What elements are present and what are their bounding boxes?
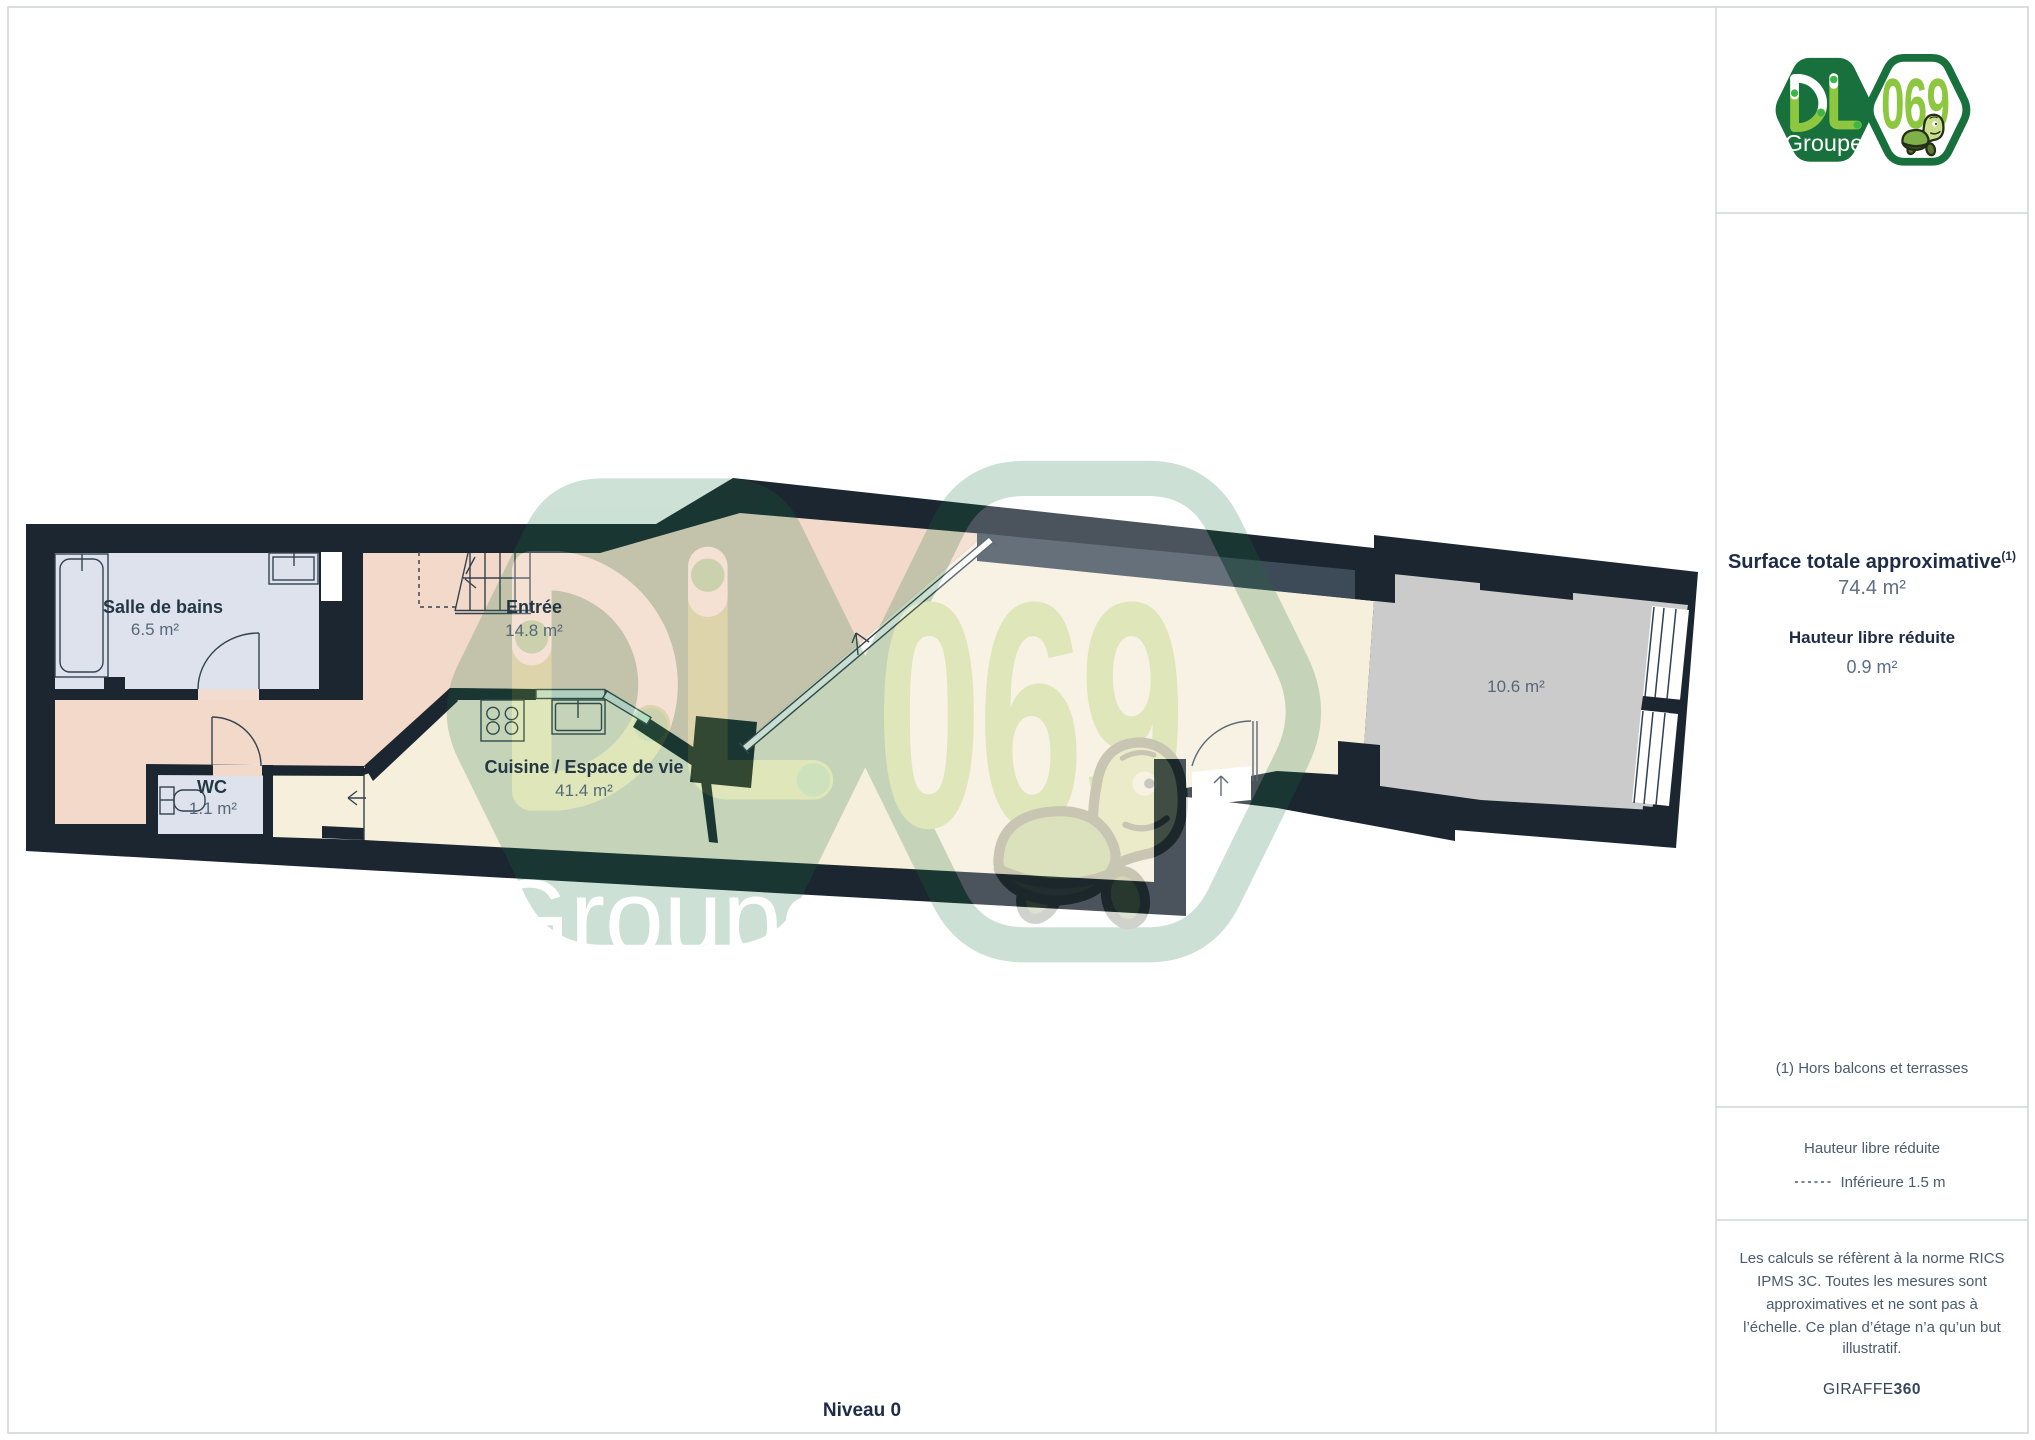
svg-text:Hauteur libre réduite: Hauteur libre réduite bbox=[1804, 1140, 1940, 1157]
svg-text:l’échelle. Ce plan d’étage n’a: l’échelle. Ce plan d’étage n’a qu’un but bbox=[1743, 1319, 2002, 1336]
svg-text:Hauteur libre réduite: Hauteur libre réduite bbox=[1789, 628, 1955, 647]
svg-text:74.4 m²: 74.4 m² bbox=[1838, 577, 1906, 599]
svg-text:14.8 m²: 14.8 m² bbox=[505, 621, 563, 640]
svg-text:illustratif.: illustratif. bbox=[1842, 1340, 1901, 1357]
svg-text:Niveau 0: Niveau 0 bbox=[823, 1400, 901, 1421]
svg-text:Les calculs se réfèrent à la n: Les calculs se réfèrent à la norme RICS bbox=[1739, 1250, 2004, 1267]
svg-text:6.5 m²: 6.5 m² bbox=[131, 620, 180, 639]
svg-text:Salle de bains: Salle de bains bbox=[103, 597, 223, 617]
svg-text:approximatives et ne sont pas: approximatives et ne sont pas à bbox=[1766, 1296, 1978, 1313]
svg-text:10.6 m²: 10.6 m² bbox=[1487, 677, 1545, 696]
svg-text:Inférieure 1.5 m: Inférieure 1.5 m bbox=[1840, 1174, 1945, 1191]
svg-text:1.1 m²: 1.1 m² bbox=[189, 799, 238, 818]
svg-text:Entrée: Entrée bbox=[506, 597, 562, 617]
svg-text:Surface totale approximative(1: Surface totale approximative(1) bbox=[1728, 549, 2016, 573]
svg-text:(1) Hors balcons et terrasses: (1) Hors balcons et terrasses bbox=[1776, 1060, 1969, 1077]
svg-text:41.4 m²: 41.4 m² bbox=[555, 781, 613, 800]
svg-text:GIRAFFE360: GIRAFFE360 bbox=[1823, 1381, 1921, 1398]
svg-text:WC: WC bbox=[197, 777, 227, 797]
svg-text:0.9 m²: 0.9 m² bbox=[1846, 657, 1897, 677]
svg-text:IPMS 3C. Toutes les mesures so: IPMS 3C. Toutes les mesures sont bbox=[1757, 1273, 1988, 1290]
svg-text:Cuisine / Espace de vie: Cuisine / Espace de vie bbox=[484, 757, 683, 777]
